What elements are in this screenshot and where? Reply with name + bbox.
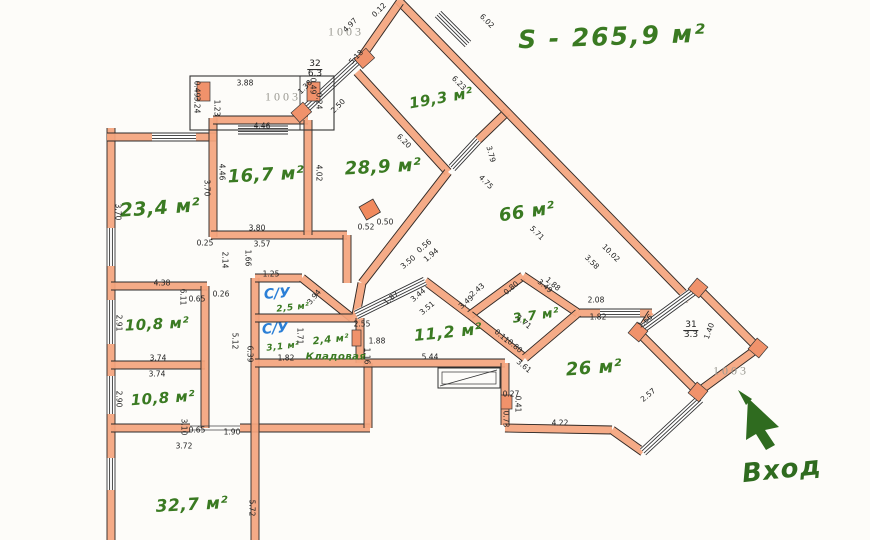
dimension-label: 6.20 — [395, 132, 413, 150]
dimension-label: 2.14 — [221, 252, 230, 269]
room-area-label: 10,8 м² — [124, 313, 189, 334]
dimension-label: 0.12 — [370, 1, 388, 19]
room-area-label: 32,7 м² — [155, 493, 229, 517]
dimension-label: 4.38 — [154, 279, 171, 288]
dimension-label: 3.50 — [399, 253, 418, 271]
dimension-label: 1.90 — [224, 428, 241, 437]
dimension-label: 1.82 — [278, 354, 295, 363]
dimension-label: 3.74 — [150, 354, 167, 363]
dimension-label: 4.46 — [254, 122, 271, 131]
room-area-label: 66 м² — [498, 198, 557, 227]
dimension-label: 0.65 — [189, 295, 206, 304]
dimension-label: 3.80 — [249, 224, 266, 233]
dimension-label: 6.02 — [478, 12, 496, 30]
bathroom-label: С/У — [261, 320, 288, 338]
dimension-label: 0.80 — [502, 279, 521, 297]
dimension-label: 0.52 — [358, 223, 375, 232]
dimension-label: 2.50 — [329, 97, 347, 115]
dimension-label: 3.61 — [515, 357, 534, 375]
room-area-label: 26 м² — [565, 356, 623, 381]
dimension-label: 3.51 — [418, 299, 437, 317]
room-area-label: 10,8 м² — [130, 387, 196, 409]
room-area-label: 2,4 м² — [312, 333, 350, 348]
dimension-label: 3.70 — [203, 180, 212, 197]
dimension-label: 0.25 — [197, 239, 214, 248]
dimension-label: 2.91 — [115, 315, 124, 332]
dimension-label: 5.71 — [528, 224, 546, 242]
dimension-label: 3.24 — [193, 97, 202, 114]
dimension-label: 3.94 — [305, 288, 323, 307]
dimension-label: 4.75 — [477, 173, 495, 191]
room-area-label: 28,9 м² — [344, 155, 422, 180]
dimension-label: 3.49 — [457, 293, 476, 311]
room-number-fraction: 313.3 — [683, 321, 698, 341]
dimension-label: 1.88 — [369, 337, 386, 346]
dimension-label: 6.11 — [179, 289, 188, 306]
dimension-label: 1.40 — [702, 322, 716, 341]
dimension-label: 3.70 — [114, 204, 123, 221]
stamp-1003: 1003 — [265, 90, 301, 105]
stamp-1003: 1003 — [713, 364, 749, 379]
room-area-label: 11,2 м² — [413, 319, 483, 345]
dimension-label: 0.50 — [377, 218, 394, 227]
dimension-label: 5.12 — [231, 333, 240, 350]
dimension-label: 3.74 — [149, 370, 166, 379]
dimension-label: 3.79 — [484, 145, 497, 163]
total-area-annotation: S - 265,9 м² — [518, 19, 708, 55]
room-area-label: Кладовая — [306, 352, 367, 363]
dimension-label: 3.57 — [254, 240, 271, 249]
dimension-label: 0.41 — [514, 396, 523, 413]
room-area-label: 16,7 м² — [227, 163, 305, 188]
dimension-label: 1.87 — [382, 289, 401, 307]
entrance-arrow-icon — [722, 380, 812, 460]
dimension-label: 1.23 — [213, 100, 222, 117]
dimension-label: 1.66 — [244, 250, 253, 267]
dimension-label: 3.44 — [409, 286, 428, 304]
dimension-label: 4.02 — [315, 165, 324, 182]
plan-annotations: S - 265,9 м² Вход 23,4 м²16,7 м²28,9 м²1… — [0, 0, 870, 540]
dimension-label: 1.16 — [363, 348, 372, 365]
dimension-label: 2.08 — [588, 296, 605, 305]
dimension-label: 3.88 — [237, 79, 254, 88]
dimension-label: 1.66 — [636, 312, 655, 330]
dimension-label: 3.72 — [176, 442, 193, 451]
bathroom-label: С/У — [263, 285, 290, 303]
dimension-label: 0.26 — [213, 290, 230, 299]
dimension-label: 0.24 — [315, 93, 324, 110]
dimension-label: 5.44 — [422, 353, 439, 362]
dimension-label: 3.10 — [180, 419, 189, 436]
dimension-label: 1.71 — [296, 328, 305, 345]
dimension-label: 2.55 — [354, 320, 371, 329]
room-area-label: 23,4 м² — [119, 194, 201, 222]
dimension-label: 6.39 — [246, 346, 255, 363]
dimension-label: 1.25 — [263, 270, 280, 279]
dimension-label: 4.22 — [552, 419, 569, 428]
floor-plan-scan: S - 265,9 м² Вход 23,4 м²16,7 м²28,9 м²1… — [0, 0, 870, 540]
dimension-label: 0.73 — [502, 411, 511, 428]
dimension-label: 10.02 — [600, 242, 622, 264]
dimension-label: 5.72 — [248, 500, 257, 517]
room-number-fraction: 326.3 — [307, 60, 322, 80]
dimension-label: 0.80 — [506, 337, 525, 355]
dimension-label: 1.82 — [590, 313, 607, 322]
dimension-label: 3.58 — [583, 253, 601, 271]
dimension-label: 4.46 — [218, 164, 227, 181]
dimension-label: 2.90 — [115, 391, 124, 408]
dimension-label: 0.65 — [189, 426, 206, 435]
dimension-label: 5.18 — [347, 48, 365, 66]
room-area-label: 2,5 м² — [276, 301, 310, 314]
dimension-label: 0.49 — [193, 81, 202, 98]
dimension-label: 2.57 — [639, 386, 658, 404]
